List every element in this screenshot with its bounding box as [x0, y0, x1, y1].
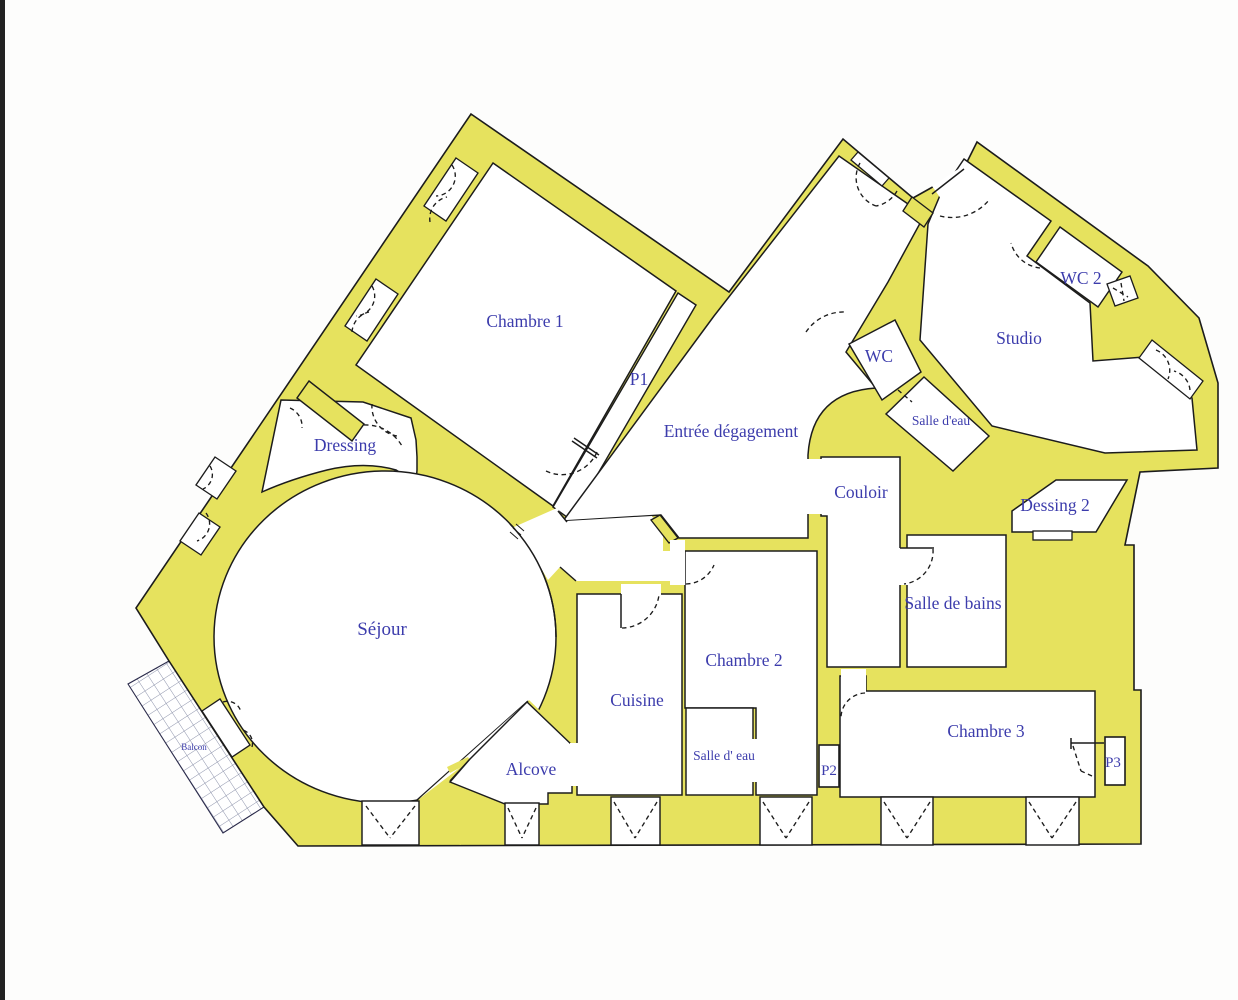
svg-text:Cuisine: Cuisine	[610, 690, 664, 710]
svg-text:P1: P1	[630, 369, 648, 389]
svg-text:Entrée dégagement: Entrée dégagement	[664, 421, 799, 441]
svg-text:Salle d' eau: Salle d' eau	[693, 748, 755, 763]
svg-text:Séjour: Séjour	[357, 619, 407, 640]
svg-text:Dessing 2: Dessing 2	[1020, 495, 1090, 515]
svg-text:WC 2: WC 2	[1060, 268, 1101, 288]
svg-text:Dressing: Dressing	[314, 435, 376, 455]
svg-text:P2: P2	[821, 763, 837, 779]
svg-text:Alcove: Alcove	[506, 759, 557, 779]
svg-text:Couloir: Couloir	[834, 482, 888, 502]
svg-text:Studio: Studio	[996, 328, 1042, 348]
svg-text:Chambre 2: Chambre 2	[705, 650, 782, 670]
svg-text:Balcon: Balcon	[181, 742, 207, 752]
svg-text:P3: P3	[1105, 755, 1121, 771]
svg-text:Chambre 1: Chambre 1	[486, 311, 563, 331]
svg-text:Chambre 3: Chambre 3	[947, 721, 1025, 741]
svg-text:Salle de bains: Salle de bains	[904, 593, 1001, 613]
svg-text:Salle d'eau: Salle d'eau	[912, 413, 971, 428]
svg-text:WC: WC	[865, 346, 893, 366]
